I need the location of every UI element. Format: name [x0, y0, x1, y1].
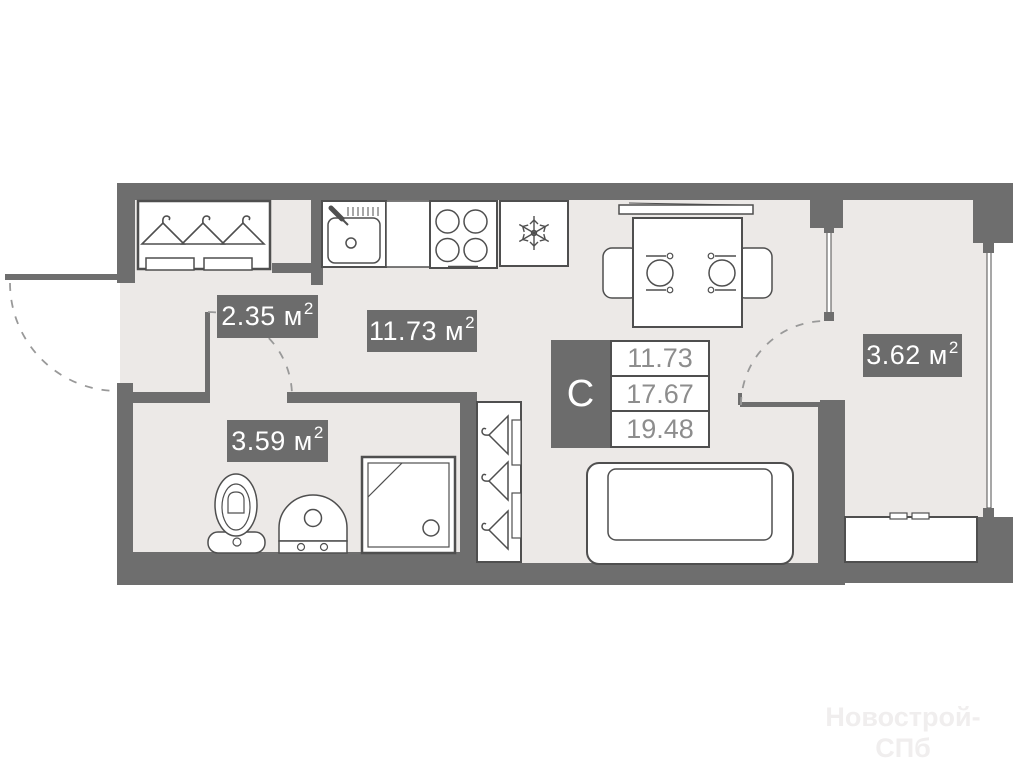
shower-tray	[362, 457, 455, 553]
coat-closet	[138, 201, 270, 270]
wall-bathroom-top-right	[287, 392, 477, 403]
wall-top	[117, 183, 1013, 200]
window-handle	[890, 513, 907, 519]
wall-balcony-top-stub	[810, 183, 843, 228]
wall-balcony-bottom	[838, 560, 1013, 583]
wall-bathroom-top-left	[130, 392, 210, 403]
sink-drainboard	[348, 207, 378, 216]
closet-shelf	[204, 258, 252, 270]
legend-unit-type: С	[551, 340, 610, 448]
wall-balcony-left	[818, 403, 845, 585]
wardrobe	[477, 402, 521, 562]
dining-table	[633, 218, 742, 327]
glass-wall	[987, 252, 991, 508]
watermark: Новострой-СПб	[798, 702, 1008, 764]
wall-bottom-living	[460, 563, 845, 585]
room-area-value: 3.62 м	[866, 340, 948, 371]
balcony-door-leaf	[740, 402, 825, 407]
glass-connector	[983, 508, 994, 518]
room-label-bathroom: 3.59 м2	[227, 420, 328, 462]
stove	[430, 201, 497, 268]
glass-door	[827, 228, 831, 318]
entrance-door-swing-arc	[10, 283, 118, 391]
entrance-door-leaf	[5, 274, 123, 280]
legend-total-area: 17.67	[610, 375, 710, 413]
room-label-balcony: 3.62 м2	[863, 334, 962, 377]
wardrobe-shelf	[512, 420, 521, 465]
wall-bathroom-right	[460, 392, 477, 563]
sofa	[587, 463, 793, 564]
wall-shaft-foot	[272, 263, 323, 273]
floor-plan-drawing	[0, 0, 1019, 768]
legend-areas-table: 11.73 17.67 19.48	[610, 340, 710, 448]
room-area-value: 3.59 м	[231, 426, 313, 457]
floor-plan: 2.35 м2 11.73 м2 3.59 м2 3.62 м2 С 11.73…	[0, 0, 1019, 768]
room-label-kitchen-living: 11.73 м2	[367, 310, 477, 352]
glass-connector	[824, 312, 834, 321]
washbasin	[279, 495, 347, 553]
wall-bottom-bathroom	[117, 552, 477, 585]
unit-type-letter: С	[567, 373, 594, 416]
balcony-window	[845, 513, 977, 562]
legend-living-area: 11.73	[610, 340, 710, 378]
window-handle	[912, 513, 929, 519]
room-label-hallway: 2.35 м2	[217, 295, 318, 338]
legend-total-area-with-balcony: 19.48	[610, 410, 710, 448]
tv-shelf	[619, 203, 753, 214]
wall-left-upper	[117, 183, 135, 283]
wall-top-right-corner	[973, 200, 1013, 243]
closet-shelf	[146, 258, 194, 270]
bathroom-door-leaf	[205, 312, 210, 397]
sink-basin	[328, 218, 380, 263]
room-area-value: 11.73 м	[369, 316, 464, 347]
glass-connector	[824, 224, 834, 233]
kitchen-counter	[386, 201, 430, 267]
kitchen-sink	[322, 201, 386, 267]
fridge	[500, 201, 568, 266]
room-area-value: 2.35 м	[221, 301, 303, 332]
wardrobe-shelf	[512, 493, 521, 538]
glass-connector	[983, 243, 994, 253]
